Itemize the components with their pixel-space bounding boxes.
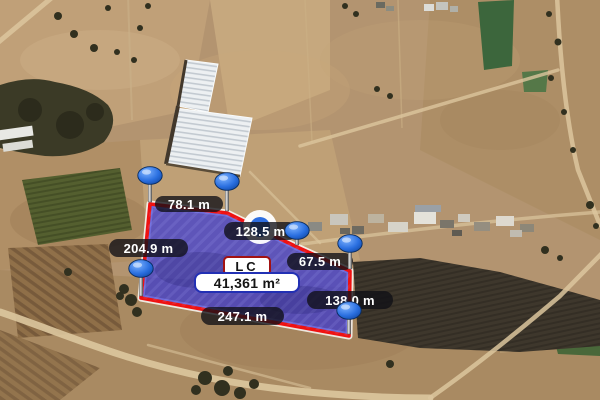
- vertex-pin-icon[interactable]: [127, 258, 155, 297]
- green-field-top-right: [478, 0, 514, 70]
- vertex-pin-icon[interactable]: [283, 220, 311, 246]
- vertex-pin-icon[interactable]: [335, 300, 363, 335]
- side-length-label: 204.9 m: [109, 239, 188, 257]
- parcel-area-badge: 41,361 m²: [194, 272, 300, 293]
- vertex-pin-icon[interactable]: [213, 171, 241, 212]
- vertex-pin-icon[interactable]: [336, 233, 364, 270]
- side-length-label: 247.1 m: [201, 307, 284, 325]
- satellite-map-view[interactable]: 78.1 m 128.5 m 204.9 m 67.5 m 138.0 m 24…: [0, 0, 600, 400]
- vertex-pin-icon[interactable]: [136, 165, 164, 203]
- aerial-imagery: [0, 0, 600, 400]
